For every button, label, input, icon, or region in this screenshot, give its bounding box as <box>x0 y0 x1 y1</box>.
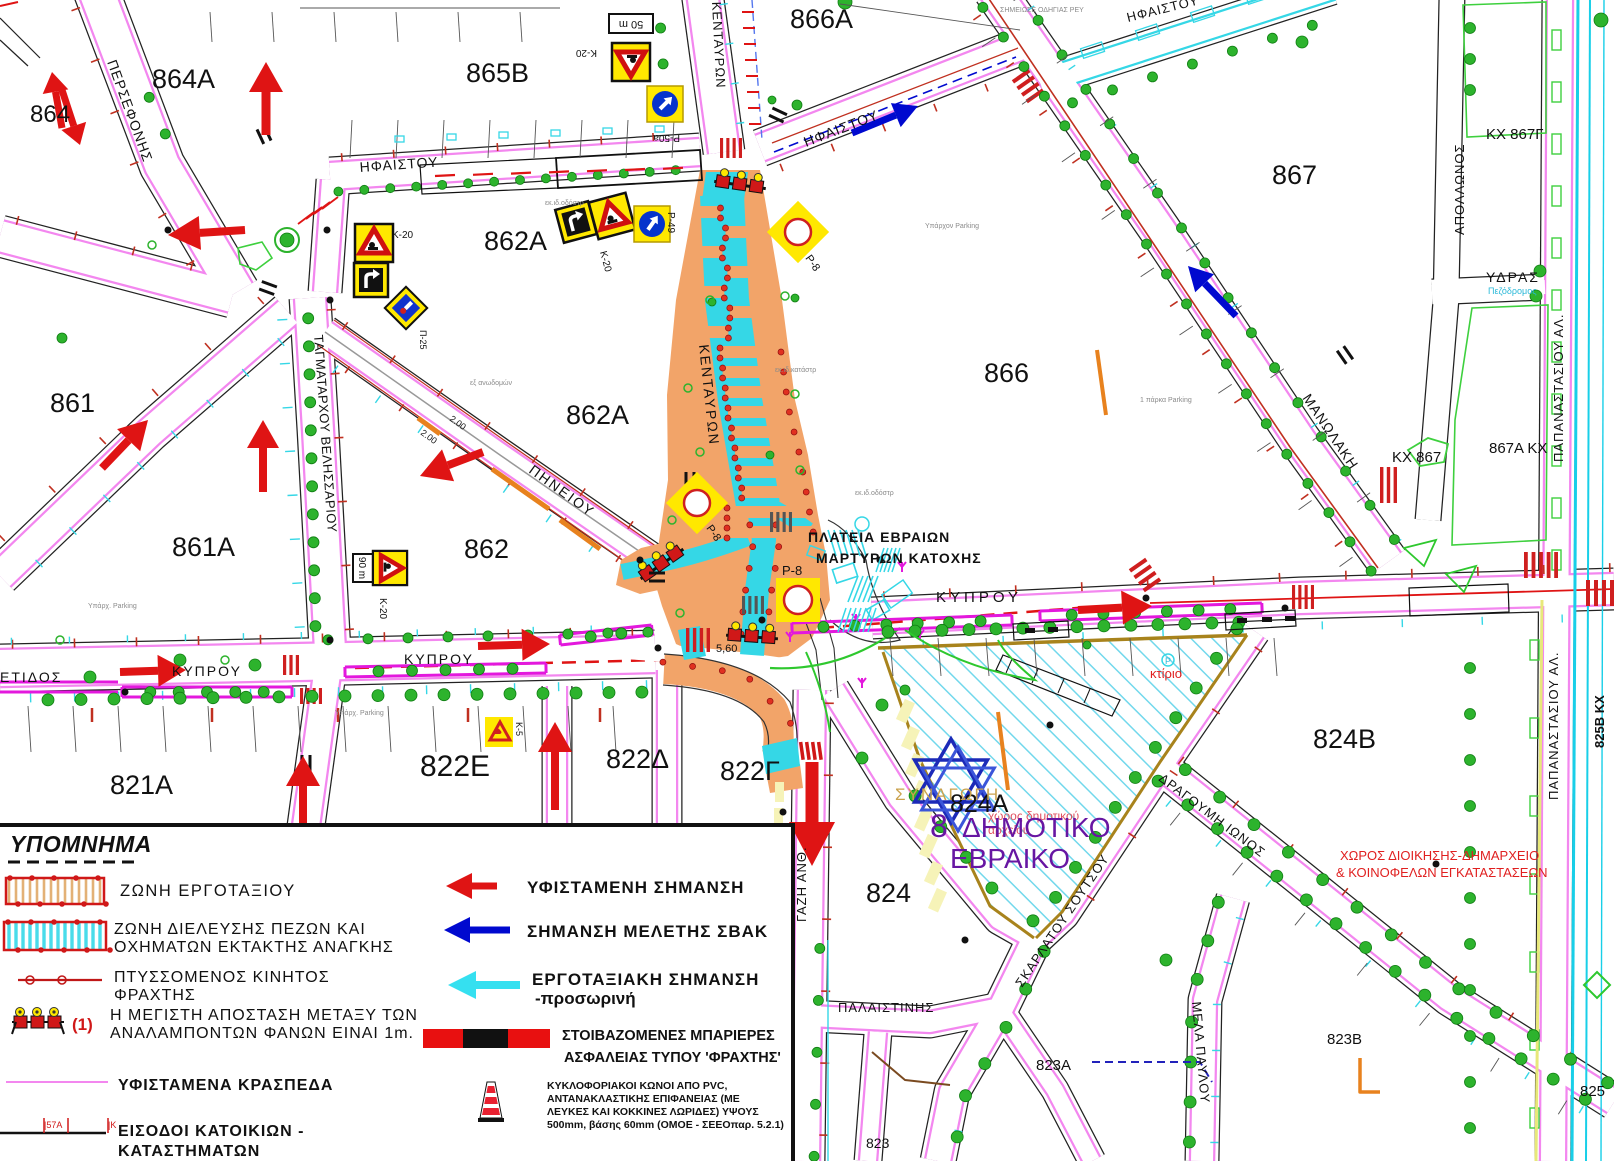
svg-text:K-20: K-20 <box>575 47 597 58</box>
svg-text:P: P <box>1165 656 1171 666</box>
svg-text:|57Α: |57Α <box>44 1120 62 1130</box>
svg-text:εξ ανωδομών: εξ ανωδομών <box>470 379 513 387</box>
svg-text:823: 823 <box>866 1135 890 1151</box>
svg-text:κτίριο: κτίριο <box>1150 666 1182 681</box>
svg-text:ΥΔΡΑΣ: ΥΔΡΑΣ <box>1486 269 1540 285</box>
svg-text:K-20: K-20 <box>377 598 388 620</box>
svg-text:821Α: 821Α <box>110 770 173 800</box>
svg-text:90 m: 90 m <box>356 557 367 579</box>
svg-text:1 πάρκα Parking: 1 πάρκα Parking <box>1140 396 1192 404</box>
svg-text:ΚΥΠΡΟΥ: ΚΥΠΡΟΥ <box>404 651 474 667</box>
svg-text:ΚΥΚΛΟΦΟΡΙΑΚΟΙ ΚΩΝΟΙ ΑΠΟ PVC,: ΚΥΚΛΟΦΟΡΙΑΚΟΙ ΚΩΝΟΙ ΑΠΟ PVC, <box>547 1080 727 1092</box>
svg-text:ΧΩΡΟΣ ΔΙΟΙΚΗΣΗΣ-ΔΗΜΑΡΧΕΙΟ: ΧΩΡΟΣ ΔΙΟΙΚΗΣΗΣ-ΔΗΜΑΡΧΕΙΟ <box>1340 848 1539 863</box>
svg-text:ΣΤΟΙΒΑΖΟΜΕΝΕΣ ΜΠΑΡΙΕΡΕΣ: ΣΤΟΙΒΑΖΟΜΕΝΕΣ ΜΠΑΡΙΕΡΕΣ <box>562 1028 775 1044</box>
svg-text:ΠΛΑΤΕΙΑ ΕΒΡΑΙΩΝ: ΠΛΑΤΕΙΑ ΕΒΡΑΙΩΝ <box>808 529 950 545</box>
svg-text:ΥΦΙΣΤΑΜΕΝΑ ΚΡΑΣΠΕΔΑ: ΥΦΙΣΤΑΜΕΝΑ ΚΡΑΣΠΕΔΑ <box>118 1077 333 1094</box>
svg-text:ΣΥΝΑΓΩΓΗ: ΣΥΝΑΓΩΓΗ <box>895 785 1000 804</box>
svg-text:ΕΙΣΟΔΟΙ ΚΑΤΟΙΚΙΩΝ -: ΕΙΣΟΔΟΙ ΚΑΤΟΙΚΙΩΝ - <box>118 1123 304 1140</box>
svg-text:(1): (1) <box>72 1015 93 1034</box>
svg-text:& ΚΟΙΝΟΦΕΛΩΝ ΕΓΚΑΤΑΣΤΑΣΕΩΝ: & ΚΟΙΝΟΦΕΛΩΝ ΕΓΚΑΤΑΣΤΑΣΕΩΝ <box>1336 865 1548 880</box>
svg-text:Πεζόδρομος: Πεζόδρομος <box>1488 286 1537 296</box>
svg-text:865Β: 865Β <box>466 58 529 88</box>
svg-text:Υπάρχ. Parking: Υπάρχ. Parking <box>88 602 137 610</box>
svg-text:ΑΝΑΛΑΜΠΟΝΤΩΝ ΦΑΝΩΝ ΕΙΝΑΙ 1m.: ΑΝΑΛΑΜΠΟΝΤΩΝ ΦΑΝΩΝ ΕΙΝΑΙ 1m. <box>110 1025 414 1042</box>
svg-text:Η ΜΕΓΙΣΤΗ ΑΠΟΣΤΑΣΗ ΜΕΤΑΞΥ ΤΩΝ: Η ΜΕΓΙΣΤΗ ΑΠΟΣΤΑΣΗ ΜΕΤΑΞΥ ΤΩΝ <box>110 1007 418 1024</box>
svg-text:5,60: 5,60 <box>716 643 737 655</box>
svg-text:ΕΤΙΔΟΣ: ΕΤΙΔΟΣ <box>0 669 62 685</box>
svg-text:862: 862 <box>464 534 509 564</box>
svg-text:ΖΩΝΗ ΔΙΕΛΕΥΣΗΣ ΠΕΖΩΝ ΚΑΙ: ΖΩΝΗ ΔΙΕΛΕΥΣΗΣ ΠΕΖΩΝ ΚΑΙ <box>114 921 366 938</box>
svg-text:822Ε: 822Ε <box>420 750 490 783</box>
svg-text:P-50a: P-50a <box>653 132 680 143</box>
svg-text:ΣΗΜΑΝΣΗ ΜΕΛΕΤΗΣ ΣΒΑΚ: ΣΗΜΑΝΣΗ ΜΕΛΕΤΗΣ ΣΒΑΚ <box>527 922 768 941</box>
svg-text:Π-25: Π-25 <box>418 330 428 350</box>
svg-text:|Κ: |Κ <box>108 1120 116 1130</box>
svg-text:866: 866 <box>984 358 1029 388</box>
svg-text:ΣΗΜΕΙΩΣΕ ΟΔΗΓΙΑΣ ΡΕΥ: ΣΗΜΕΙΩΣΕ ΟΔΗΓΙΑΣ ΡΕΥ <box>1000 7 1084 14</box>
svg-text:ΚΥΠΡΟΥ: ΚΥΠΡΟΥ <box>172 663 242 679</box>
svg-text:ΠΑΛΑΙΣΤΙΝΗΣ: ΠΑΛΑΙΣΤΙΝΗΣ <box>838 1000 934 1015</box>
svg-text:50 m: 50 m <box>619 18 643 30</box>
svg-text:ΚΧ 867: ΚΧ 867 <box>1392 449 1441 466</box>
svg-text:866Α: 866Α <box>790 4 853 34</box>
svg-text:ΜΑΡΤΥΡΩΝ ΚΑΤΟΧΗΣ: ΜΑΡΤΥΡΩΝ ΚΑΤΟΧΗΣ <box>816 550 982 566</box>
svg-text:ΠΑΠΑΝΑΣΤΑΣΙΟΥ ΑΛ.: ΠΑΠΑΝΑΣΤΑΣΙΟΥ ΑΛ. <box>1551 314 1566 463</box>
svg-text:ΚΑΤΑΣΤΗΜΑΤΩΝ: ΚΑΤΑΣΤΗΜΑΤΩΝ <box>118 1143 260 1160</box>
svg-text:ΑΣΦΑΛΕΙΑΣ ΤΥΠΟΥ 'ΦΡΑΧΤΗΣ': ΑΣΦΑΛΕΙΑΣ ΤΥΠΟΥ 'ΦΡΑΧΤΗΣ' <box>564 1050 781 1066</box>
svg-text:εκ.ιδ.οδόστρ: εκ.ιδ.οδόστρ <box>545 199 584 207</box>
svg-text:ΕΒΡΑΙΚΟ: ΕΒΡΑΙΚΟ <box>950 843 1070 874</box>
svg-text:864Α: 864Α <box>152 64 215 94</box>
svg-text:ΑΝΤΑΝΑΚΛΑΣΤΙΚΗΣ ΕΠΙΦΑΝΕΙΑΣ (ΜΕ: ΑΝΤΑΝΑΚΛΑΣΤΙΚΗΣ ΕΠΙΦΑΝΕΙΑΣ (ΜΕ <box>547 1093 740 1105</box>
svg-text:ΛΕΥΚΕΣ ΚΑΙ ΚΟΚΚΙΝΕΣ ΛΩΡΙΔΕΣ) Υ: ΛΕΥΚΕΣ ΚΑΙ ΚΟΚΚΙΝΕΣ ΛΩΡΙΔΕΣ) ΥΨΟΥΣ <box>547 1106 759 1118</box>
svg-text:823Α: 823Α <box>1036 1057 1071 1074</box>
svg-text:K-5: K-5 <box>514 722 524 736</box>
svg-text:ΚΧ 867Γ: ΚΧ 867Γ <box>1486 126 1543 143</box>
svg-text:P-8: P-8 <box>782 563 802 578</box>
svg-text:ΦΡΑΧΤΗΣ: ΦΡΑΧΤΗΣ <box>114 987 196 1004</box>
svg-text:825: 825 <box>1580 1083 1605 1100</box>
svg-text:861Α: 861Α <box>172 532 235 562</box>
svg-text:862Α: 862Α <box>566 400 629 430</box>
svg-text:εκ.ιδ.οδόστρ: εκ.ιδ.οδόστρ <box>855 489 894 497</box>
svg-text:εκ.ιδ.κατάστρ: εκ.ιδ.κατάστρ <box>775 366 816 374</box>
svg-text:-προσωρινή: -προσωρινή <box>535 989 636 1008</box>
svg-text:867: 867 <box>1272 160 1317 190</box>
svg-text:823Β: 823Β <box>1327 1031 1362 1048</box>
svg-text:Υπάρχον Parking: Υπάρχον Parking <box>925 222 979 230</box>
svg-text:ΥΦΙΣΤΑΜΕΝΗ ΣΗΜΑΝΣΗ: ΥΦΙΣΤΑΜΕΝΗ ΣΗΜΑΝΣΗ <box>527 878 744 897</box>
svg-text:ΑΠΟΛΛΩΝΟΣ: ΑΠΟΛΛΩΝΟΣ <box>1452 143 1467 235</box>
svg-text:ΚΥΠΡΟΥ: ΚΥΠΡΟΥ <box>936 589 1022 606</box>
svg-text:825Β ΚΧ: 825Β ΚΧ <box>1592 695 1607 748</box>
svg-text:500mm, βάσης 60mm (ΟΜΟΕ - ΣΕΕΟ: 500mm, βάσης 60mm (ΟΜΟΕ - ΣΕΕΟπαρ. 5.2.1… <box>547 1119 784 1131</box>
svg-text:8: 8 <box>930 808 948 844</box>
svg-text:P-49: P-49 <box>665 212 676 234</box>
svg-text:822Γ: 822Γ <box>720 756 780 786</box>
svg-text:867Α ΚΧ: 867Α ΚΧ <box>1489 440 1547 457</box>
svg-text:ΓΑΖΗ ΑΝΘ.: ΓΑΖΗ ΑΝΘ. <box>794 846 809 922</box>
svg-text:824: 824 <box>866 878 911 908</box>
svg-text:824Β: 824Β <box>1313 724 1376 754</box>
svg-text:ΥΠΟΜΝΗΜΑ: ΥΠΟΜΝΗΜΑ <box>10 831 152 857</box>
svg-text:ΖΩΝΗ ΕΡΓΟΤΑΞΙΟΥ: ΖΩΝΗ ΕΡΓΟΤΑΞΙΟΥ <box>120 882 296 900</box>
svg-text:822Δ: 822Δ <box>606 744 669 774</box>
svg-text:ΕΡΓΟΤΑΞΙΑΚΗ ΣΗΜΑΝΣΗ: ΕΡΓΟΤΑΞΙΑΚΗ ΣΗΜΑΝΣΗ <box>532 970 759 989</box>
svg-text:ΟΧΗΜΑΤΩΝ ΕΚΤΑΚΤΗΣ ΑΝΑΓΚΗΣ: ΟΧΗΜΑΤΩΝ ΕΚΤΑΚΤΗΣ ΑΝΑΓΚΗΣ <box>114 939 394 956</box>
svg-text:862Α: 862Α <box>484 226 547 256</box>
svg-text:864: 864 <box>30 101 70 128</box>
svg-text:Υπάρχ. Parking: Υπάρχ. Parking <box>335 709 384 717</box>
svg-text:ΠΑΠΑΝΑΣΤΑΣΙΟΥ ΑΛ.: ΠΑΠΑΝΑΣΤΑΣΙΟΥ ΑΛ. <box>1546 652 1561 801</box>
svg-text:ΔΗΜΟΤΙΚΟ: ΔΗΜΟΤΙΚΟ <box>962 812 1111 843</box>
svg-text:K-20: K-20 <box>392 230 414 241</box>
svg-text:ΠΤΥΣΣΟΜΕΝΟΣ ΚΙΝΗΤΟΣ: ΠΤΥΣΣΟΜΕΝΟΣ ΚΙΝΗΤΟΣ <box>114 969 330 986</box>
svg-text:861: 861 <box>50 388 95 418</box>
